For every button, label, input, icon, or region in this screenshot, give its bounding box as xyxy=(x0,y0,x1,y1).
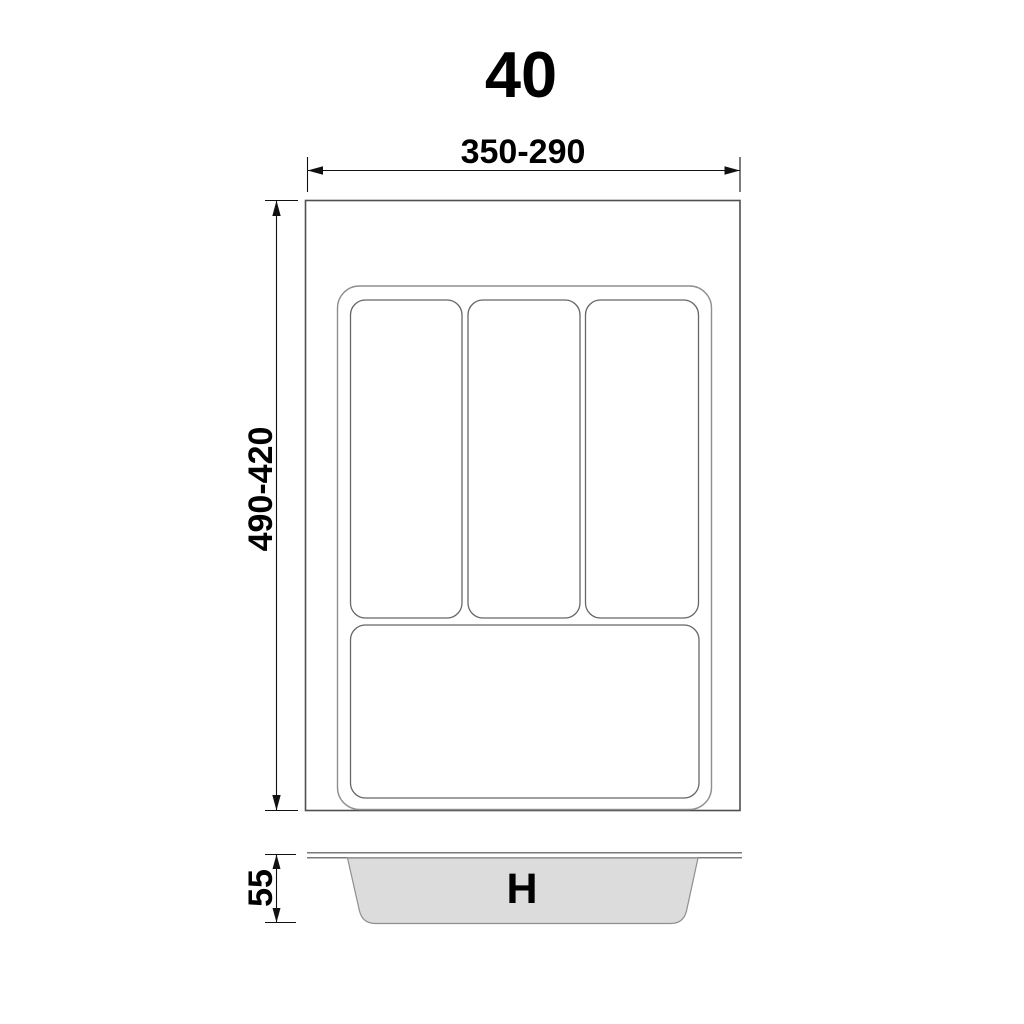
height-dimension-label: 490-420 xyxy=(242,427,280,552)
arrow-up-icon xyxy=(272,201,280,217)
side-view: H xyxy=(307,853,742,924)
top-view xyxy=(306,201,741,811)
arrow-right-icon xyxy=(725,166,741,174)
cutlery-tray-technical-drawing: 40 xyxy=(0,0,1024,1024)
technical-drawing-page: 40 xyxy=(0,0,1024,1024)
width-dimension-text: 350-290 xyxy=(461,133,586,171)
side-height-dimension: 55 xyxy=(242,855,296,923)
width-dimension-label: 350-290 xyxy=(461,133,586,171)
width-dimension: 350-290 xyxy=(308,133,741,192)
side-height-dimension-text: 55 xyxy=(242,869,280,907)
arrow-left-icon xyxy=(308,166,324,174)
compartment-top-right xyxy=(586,300,699,618)
compartments xyxy=(351,300,700,798)
tray-height-text: H xyxy=(506,865,537,913)
arrow-down-icon xyxy=(272,795,280,811)
arrow-up-icon xyxy=(273,855,281,870)
tray-height-label: H xyxy=(506,865,537,913)
height-dimension-text: 490-420 xyxy=(242,427,280,552)
arrow-down-icon xyxy=(273,908,281,923)
side-height-dimension-label: 55 xyxy=(242,869,280,907)
compartment-bottom xyxy=(351,625,700,798)
flange-lines xyxy=(307,853,742,858)
compartment-top-middle xyxy=(468,300,580,618)
title-group: 40 xyxy=(485,38,557,111)
drawing-number-title: 40 xyxy=(485,38,557,111)
compartment-top-left xyxy=(351,300,463,618)
height-dimension: 490-420 xyxy=(242,201,298,811)
